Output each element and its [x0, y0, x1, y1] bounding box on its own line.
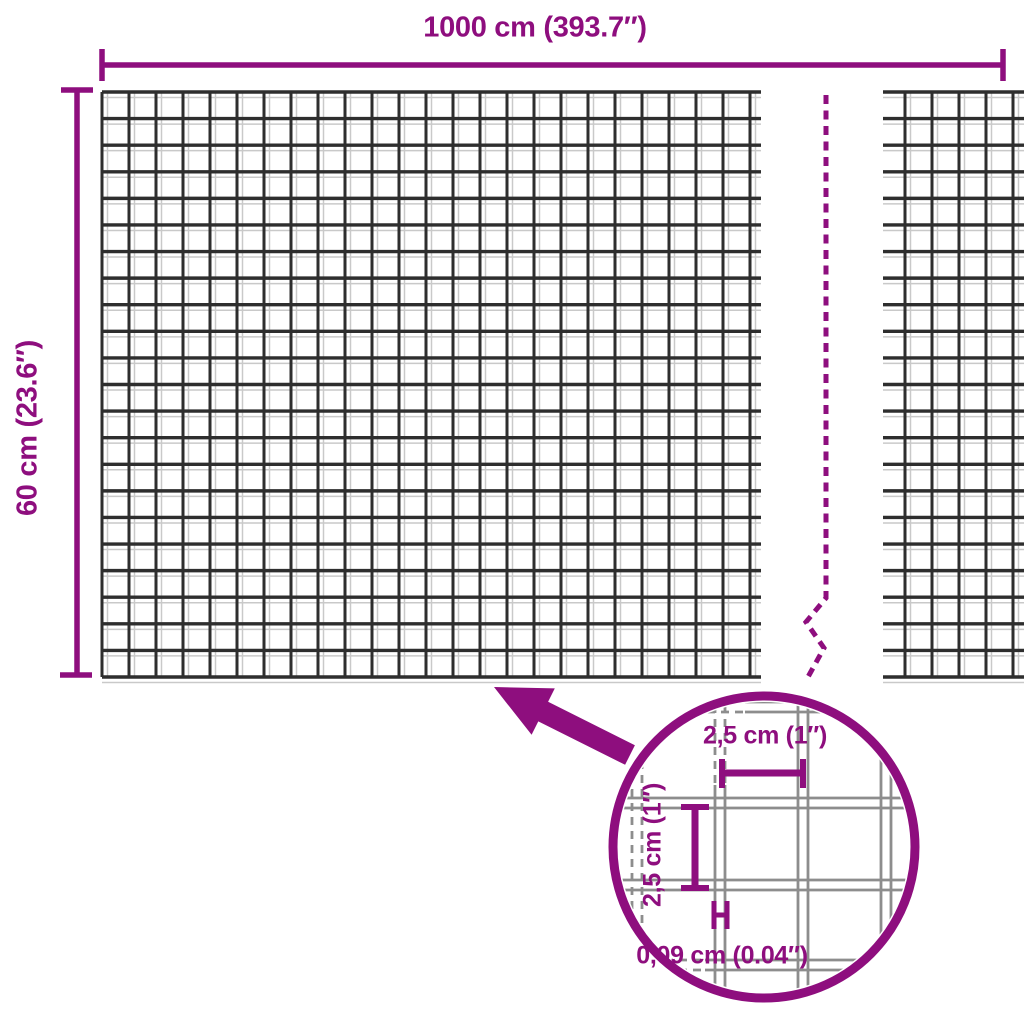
height-dimension-line	[60, 90, 93, 675]
diagram-graphics	[0, 0, 1024, 1024]
arrow-icon	[494, 687, 635, 765]
height-dimension-label: 60 cm (23.6″)	[12, 340, 45, 516]
break-line	[806, 95, 826, 677]
mesh-section-left	[102, 92, 761, 683]
width-dimension-label: 1000 cm (393.7″)	[423, 12, 647, 45]
width-dimension-line	[102, 49, 1003, 81]
mesh-section-right	[883, 92, 1024, 683]
inset-cell-height-label: 2,5 cm (1″)	[639, 783, 668, 907]
inset-wire-thickness-label: 0,09 cm (0.04″)	[636, 942, 807, 971]
inset-cell-width-label: 2,5 cm (1″)	[703, 722, 827, 751]
product-dimension-diagram: 1000 cm (393.7″) 60 cm (23.6″) 2,5 cm (1…	[0, 0, 1024, 1024]
